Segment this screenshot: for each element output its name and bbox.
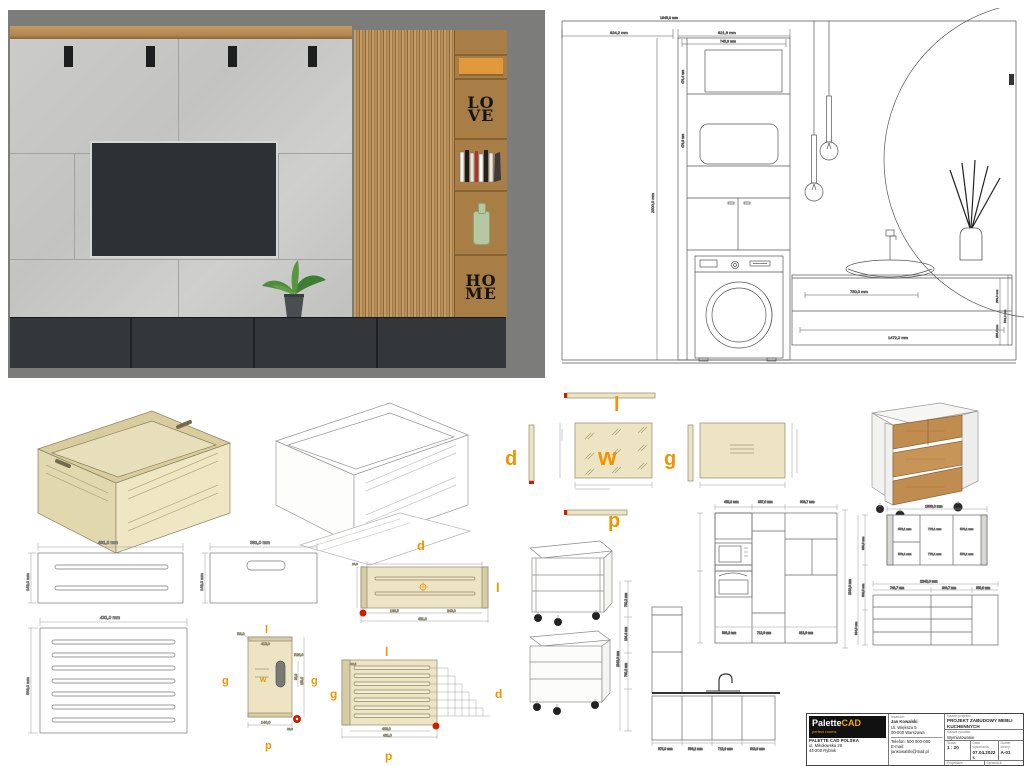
part-letter: l <box>496 580 500 595</box>
page-label: Numer strony: <box>1001 741 1022 750</box>
cabinet-3d-wood-drawers <box>872 403 978 520</box>
dim-label: 233,0 mm <box>995 289 999 303</box>
date-label: Data wykonania: <box>973 741 996 750</box>
dim-label: 568,0 mm <box>25 677 30 695</box>
investor-address-2: 00-000 Warszawa <box>891 730 942 735</box>
cabinet-3d-solid-front <box>530 631 610 715</box>
part-letter: d <box>417 538 425 553</box>
dim-label: 481,0 <box>418 617 427 621</box>
title-block-company: PaletteCAD perfect rooms PALETTE CAD POL… <box>807 714 889 765</box>
pendant-lights <box>805 21 838 201</box>
dim-label: 773,1 mm <box>928 527 942 531</box>
vase-with-twigs <box>950 160 1000 260</box>
date-value: 07.04.2022 r. <box>973 750 996 761</box>
ceiling-spotlight-icon <box>146 46 155 67</box>
books-icon <box>459 148 503 182</box>
drawing-title: Wymiarowanie <box>947 735 1021 740</box>
part-views: l d w g p <box>505 393 797 532</box>
dim-label: 413,0 <box>261 642 270 646</box>
dim-label: 476,8 mm <box>681 133 685 148</box>
dim-label: 140,0 <box>261 721 271 725</box>
towel-roll <box>700 124 778 164</box>
part-letter: p <box>265 740 272 752</box>
part-letter: p <box>608 510 620 532</box>
crate-3d-wireframe <box>276 403 470 565</box>
marker-red <box>564 393 567 398</box>
dim-label: 650,0 mm <box>861 536 865 550</box>
brand-tagline: perfect rooms <box>812 729 883 734</box>
dim-label: 16,0 <box>352 562 358 566</box>
dim-label: 760,2 mm <box>624 662 628 677</box>
base-cabinets <box>10 317 506 368</box>
dim-label: 1645,0 mm <box>660 16 678 20</box>
dim-label: 255,0 mm <box>995 324 999 338</box>
crate-3d-solid <box>38 411 230 553</box>
page-value: A-01 <box>1001 750 1022 755</box>
dim-label: 28,0 <box>287 727 293 731</box>
dim-label: 2242,0 mm <box>920 580 938 584</box>
part-letter: p <box>385 749 392 763</box>
shelf-love: LO VE <box>455 78 507 138</box>
cabinet-divider <box>253 318 255 368</box>
dim-label: 452,3 mm <box>724 500 739 504</box>
dim-label: 150,0 <box>300 677 304 685</box>
side-panel-dimensioned: R3,0 R25,0 413,0 98,0 150,0 140,0 28,0 l… <box>222 624 318 752</box>
tv-screen <box>90 141 278 258</box>
dim-label: 824,2 mm <box>610 30 628 35</box>
slat-panel-dimensioned: 403,0 431,0 R2,5 l g d p <box>330 645 502 763</box>
mirror-arc <box>884 8 1024 318</box>
part-letter: g <box>222 675 229 687</box>
dim-label: 98,0 <box>294 674 298 680</box>
ceiling-spotlight-icon <box>64 46 73 67</box>
marker-red <box>360 610 367 617</box>
dim-label: 148,0 mm <box>199 573 204 591</box>
investor-email: E-mail: jankowalski@mail.pl <box>891 744 942 754</box>
dim-label: 431,0 mm <box>100 615 120 620</box>
love-decor-line2: VE <box>468 106 495 125</box>
dim-label: 821,9 mm <box>718 30 736 35</box>
project-title: PROJEKT ZABUDOWY MEBLI KUCHENNYCH <box>947 718 1021 729</box>
marker-red <box>529 481 534 484</box>
part-letter: d <box>495 687 502 701</box>
washing-machine <box>695 256 783 361</box>
wood-slat-panel <box>354 30 454 318</box>
part-letter: d <box>505 448 517 470</box>
ceiling-spotlight-icon <box>308 46 317 67</box>
marker-red <box>433 723 440 730</box>
dim-label: 194,4 mm <box>624 626 628 641</box>
dim-label: 572,0 mm <box>658 747 673 751</box>
palettecad-logo: PaletteCAD perfect rooms <box>809 716 886 738</box>
dim-label: 613,9 mm <box>799 631 814 635</box>
potted-plant <box>256 248 332 318</box>
part-letter: g <box>330 687 337 701</box>
shelf-drawer <box>455 54 507 78</box>
part-letter: g <box>664 448 676 470</box>
panel-seam <box>278 153 279 259</box>
brand-name-2: CAD <box>842 718 862 728</box>
cabinet-divider <box>376 318 378 368</box>
dim-label: 1472,2 mm <box>888 335 909 340</box>
dim-label: R25,0 <box>294 653 303 657</box>
dim-label: 573,1 mm <box>960 527 974 531</box>
dim-label: 1869,0 mm <box>925 505 943 509</box>
side-view-dimensioned: 381,0 mm 148,0 mm <box>199 540 317 603</box>
dim-label: 743,7 mm <box>890 586 905 590</box>
dim-label: 431,0 <box>383 734 392 738</box>
dim-label: 357,0 mm <box>758 500 773 504</box>
panel-seam <box>178 259 179 317</box>
dim-label: 712,9 mm <box>757 631 772 635</box>
part-letter: w <box>259 675 267 684</box>
vessel-sink <box>846 230 934 278</box>
marker-red <box>564 510 567 515</box>
orange-drawer-front <box>459 58 503 76</box>
dim-label: 862,5 mm <box>861 583 865 597</box>
bottom-view-dimensioned: 431,0 mm 568,0 mm <box>25 615 187 733</box>
shelf-books <box>455 138 507 190</box>
dim-label: 750,0 mm <box>850 289 868 294</box>
dim-label: 844,7 mm <box>942 586 957 590</box>
dim-label: 504,5 mm <box>854 621 858 635</box>
dim-label: 596,2 mm <box>688 747 703 751</box>
company-address-2: 44-200 Rybnik <box>809 748 886 753</box>
dim-label: 745,9 mm <box>720 40 736 44</box>
dimensions: 824,2 mm 1645,0 mm 821,9 mm 745,9 mm 250… <box>562 16 1008 360</box>
wood-beam <box>10 26 352 39</box>
home-decor-line2: ME <box>465 284 497 303</box>
dim-label: 650,0 mm <box>976 586 991 590</box>
dim-label: 240,0 <box>447 609 456 613</box>
dim-label: 2500,0 mm <box>650 192 655 213</box>
towel-box <box>705 50 782 92</box>
part-letter: l <box>614 394 620 416</box>
cabinet-3d-open-frame <box>530 541 612 626</box>
dim-label: 760,2 mm <box>624 592 628 607</box>
part-letter: l <box>265 624 268 636</box>
top-panel-view <box>700 423 785 478</box>
part-letter: w <box>597 444 617 471</box>
parts-drawings: l d w g p <box>0 385 1024 766</box>
shelf-bottle <box>455 190 507 254</box>
green-bottle-icon <box>473 211 490 245</box>
shelf-column: LO VE HO ME <box>454 30 507 318</box>
shelf-empty <box>455 30 507 54</box>
dim-label: 573,1 mm <box>898 552 912 556</box>
dim-label: 773,1 mm <box>928 552 942 556</box>
part-letter: l <box>385 645 388 659</box>
dim-label: 603,7 mm <box>800 500 815 504</box>
brand-name-1: Palette <box>812 718 842 728</box>
title-block: PaletteCAD perfect rooms PALETTE CAD POL… <box>806 713 1024 766</box>
wall-switch-icon <box>1009 74 1014 85</box>
dim-label: 543,0 mm <box>1003 309 1007 323</box>
title-block-investor: Inwestor: Jan Kowalski Ul. Większa 5 00-… <box>889 714 945 765</box>
panel-seam <box>74 153 75 259</box>
dim-label: 481,0 mm <box>98 540 118 545</box>
dim-label: 712,9 mm <box>718 747 733 751</box>
dim-label: 573,1 mm <box>960 552 974 556</box>
dim-label: 138,5 <box>390 609 399 613</box>
dim-label: R2,5 <box>350 662 357 666</box>
part-letter: g <box>311 675 318 687</box>
dim-label: 613,9 mm <box>750 747 765 751</box>
tv-wall-render: LO VE HO ME <box>8 10 545 378</box>
room-outline <box>562 21 1016 363</box>
dim-label: R3,0 <box>237 632 244 636</box>
dim-label: 598,2 mm <box>722 631 737 635</box>
cad-sheet: LO VE HO ME <box>0 0 1024 766</box>
front-view-dimensioned: 481,0 mm 148,0 mm <box>25 540 183 603</box>
dim-label: 476,4 mm <box>681 69 685 84</box>
scale-value: 1 : 20 <box>947 745 968 750</box>
cabinet-divider <box>130 318 132 368</box>
kitchen-tall-elevation: 452,3 mm 357,0 mm 603,7 mm 598,2 mm 712,… <box>697 500 852 648</box>
bathroom-elevation-drawing: 824,2 mm 1645,0 mm 821,9 mm 745,9 mm 250… <box>560 8 1024 370</box>
dim-label: 2342,0 mm <box>616 651 620 667</box>
dim-label: 403,0 <box>382 727 391 731</box>
shelf-home: HO ME <box>455 254 507 318</box>
dim-label: 381,0 mm <box>250 540 270 545</box>
panel-seam <box>178 39 179 153</box>
dim-label: 2342,0 mm <box>848 579 852 595</box>
dim-label: 573,1 mm <box>898 527 912 531</box>
title-block-project: Nazwa projektu: PROJEKT ZABUDOWY MEBLI K… <box>945 714 1023 765</box>
dim-label: 148,0 mm <box>25 573 30 591</box>
ceiling-spotlight-icon <box>228 46 237 67</box>
